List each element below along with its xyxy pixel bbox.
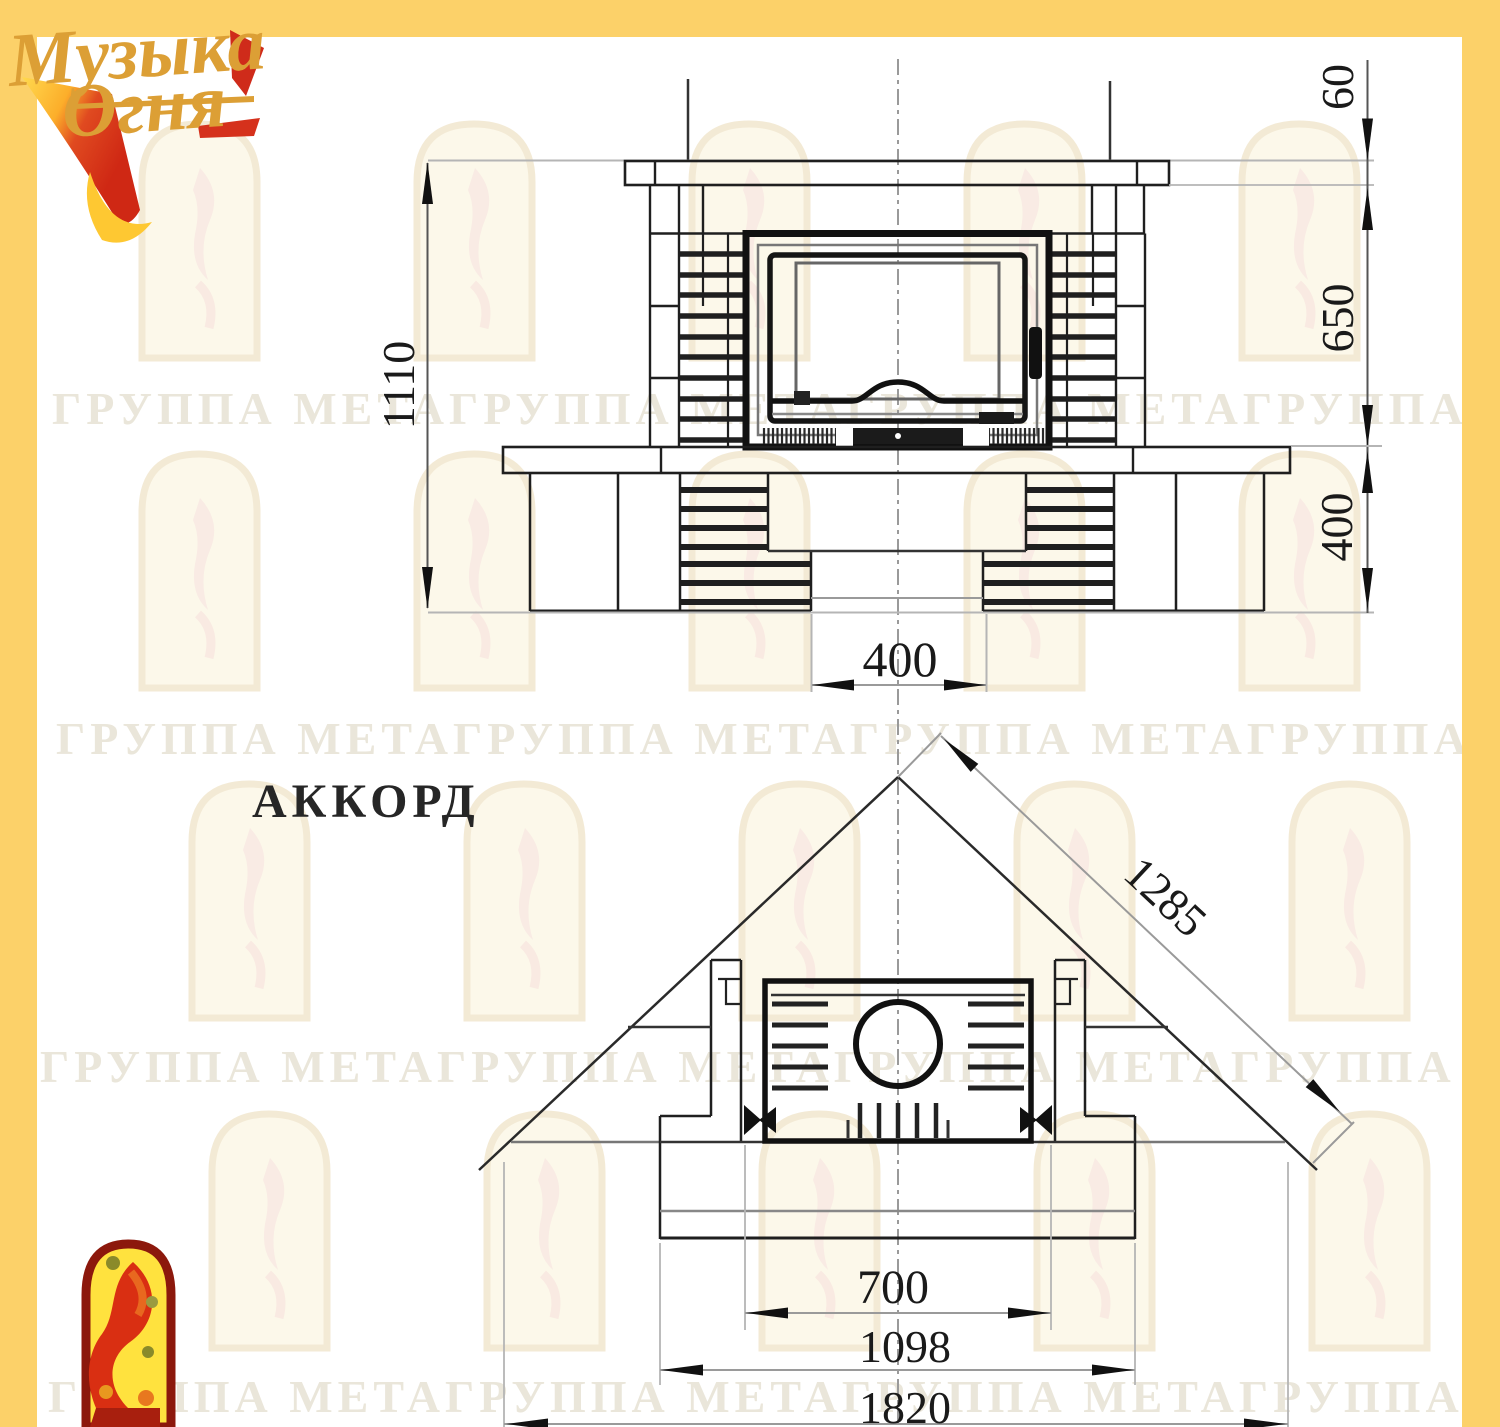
svg-text:650: 650 (1312, 284, 1363, 353)
svg-text:400: 400 (1311, 493, 1362, 562)
svg-text:1820: 1820 (859, 1382, 951, 1427)
svg-text:ГРУППА МЕТАГРУППА МЕТАГРУППА М: ГРУППА МЕТАГРУППА МЕТАГРУППА МЕТАГРУППА … (56, 713, 1500, 764)
svg-text:ГРУППА МЕТАГРУППА МЕТАГРУППА М: ГРУППА МЕТАГРУППА МЕТАГРУППА МЕТАГРУППА … (48, 1371, 1500, 1422)
svg-text:400: 400 (863, 631, 938, 687)
svg-text:Огня: Огня (59, 59, 229, 154)
svg-text:ГРУППА МЕТАГРУППА МЕТАГРУППА М: ГРУППА МЕТАГРУППА МЕТАГРУППА МЕТАГРУППА … (52, 383, 1500, 434)
svg-text:АККОРД: АККОРД (252, 775, 480, 828)
svg-text:ГРУППА МЕТАГРУППА МЕТАГРУППА М: ГРУППА МЕТАГРУППА МЕТАГРУППА МЕТАГРУППА … (40, 1041, 1500, 1092)
svg-text:60: 60 (1312, 64, 1363, 110)
svg-text:1098: 1098 (859, 1321, 951, 1372)
svg-text:700: 700 (857, 1261, 929, 1314)
svg-text:1110: 1110 (373, 341, 424, 430)
